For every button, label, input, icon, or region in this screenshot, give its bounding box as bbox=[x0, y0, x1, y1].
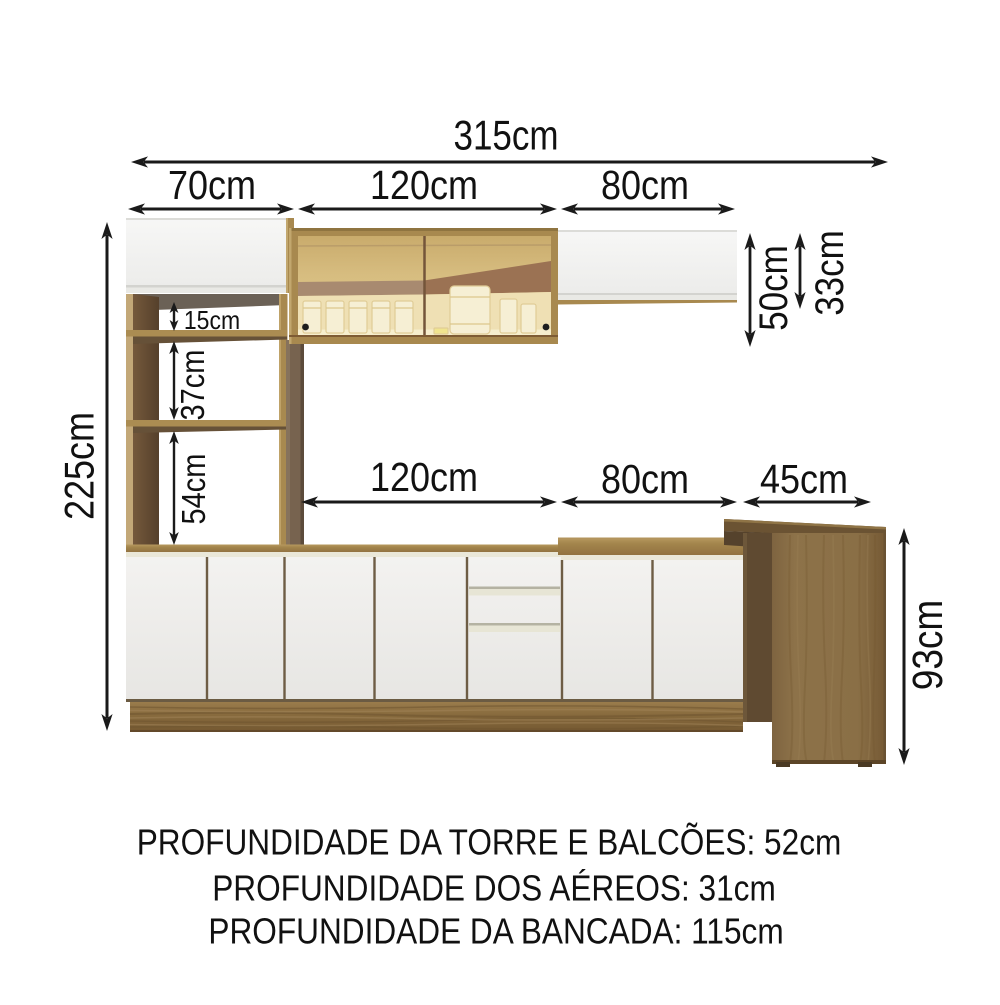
svg-text:PROFUNDIDADE DA BANCADA: 115cm: PROFUNDIDADE DA BANCADA: 115cm bbox=[208, 912, 783, 953]
svg-text:PROFUNDIDADE DOS AÉREOS: 31cm: PROFUNDIDADE DOS AÉREOS: 31cm bbox=[212, 869, 776, 910]
svg-text:15cm: 15cm bbox=[184, 307, 240, 335]
svg-text:120cm: 120cm bbox=[370, 163, 478, 208]
svg-text:70cm: 70cm bbox=[168, 163, 256, 208]
svg-text:54cm: 54cm bbox=[175, 454, 212, 525]
svg-text:120cm: 120cm bbox=[370, 455, 478, 500]
svg-text:315cm: 315cm bbox=[453, 113, 558, 159]
svg-text:80cm: 80cm bbox=[601, 457, 689, 502]
svg-text:PROFUNDIDADE DA TORRE E BALCÕE: PROFUNDIDADE DA TORRE E BALCÕES: 52cm bbox=[137, 823, 842, 864]
svg-text:50cm: 50cm bbox=[751, 245, 796, 331]
svg-text:37cm: 37cm bbox=[174, 350, 211, 421]
svg-text:33cm: 33cm bbox=[807, 230, 852, 316]
svg-text:225cm: 225cm bbox=[57, 412, 103, 520]
svg-text:45cm: 45cm bbox=[760, 457, 848, 502]
svg-text:93cm: 93cm bbox=[905, 600, 952, 690]
svg-text:80cm: 80cm bbox=[601, 163, 689, 208]
